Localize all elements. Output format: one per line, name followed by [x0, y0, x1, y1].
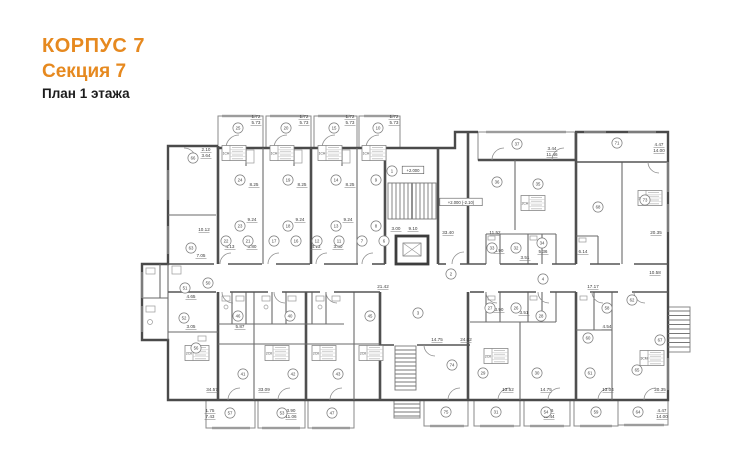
apartment-spec-table: 2СК — [484, 349, 508, 364]
svg-text:68: 68 — [596, 205, 601, 210]
svg-text:5.73: 5.73 — [252, 120, 261, 125]
svg-text:8.25: 8.25 — [298, 182, 307, 187]
svg-text:4.47: 4.47 — [658, 408, 667, 413]
dimension-label: 11.06 — [285, 414, 297, 420]
room-number-circle: 36 — [492, 177, 502, 187]
svg-text:6.14: 6.14 — [579, 249, 588, 254]
svg-text:34.57: 34.57 — [206, 387, 218, 392]
dimension-label: 11.46 — [546, 152, 558, 158]
dimension-label: 14.75 — [431, 337, 443, 343]
svg-text:3.64: 3.64 — [202, 153, 211, 158]
dimension-label: 24.02 — [460, 337, 472, 343]
svg-text:3.51: 3.51 — [520, 310, 529, 315]
svg-text:+2.000: +2.000 — [407, 168, 421, 173]
svg-text:56: 56 — [194, 346, 199, 351]
room-number-circle: 58 — [602, 303, 612, 313]
room-number-circle: 46 — [233, 311, 243, 321]
svg-text:4.47: 4.47 — [655, 142, 664, 147]
svg-text:64: 64 — [636, 410, 641, 415]
svg-text:25: 25 — [236, 126, 241, 131]
room-number-circle: 29 — [478, 368, 488, 378]
svg-text:46: 46 — [236, 314, 241, 319]
svg-text:5.73: 5.73 — [300, 120, 309, 125]
room-number-circle: 12 — [312, 236, 322, 246]
apartment-spec-table: 2СК — [312, 346, 336, 361]
room-number-circle: 8 — [371, 221, 381, 231]
dimension-label: 6.14 — [578, 249, 589, 255]
svg-text:11.52: 11.52 — [489, 230, 501, 235]
svg-text:9.10: 9.10 — [409, 226, 418, 231]
svg-text:73: 73 — [643, 198, 648, 203]
svg-text:2.10: 2.10 — [202, 147, 211, 152]
svg-text:11.06: 11.06 — [285, 414, 297, 419]
dimension-label: 9.24 — [343, 217, 354, 223]
svg-text:1.72: 1.72 — [300, 114, 309, 119]
staircase — [388, 183, 690, 416]
room-number-circle: 17 — [269, 236, 279, 246]
svg-text:11: 11 — [337, 239, 342, 244]
svg-text:17: 17 — [272, 239, 277, 244]
room-number-circle: 67 — [655, 335, 665, 345]
dimension-label: 5.36 — [538, 249, 549, 255]
dimension-label: 34.57 — [206, 387, 218, 393]
floor-plan-page: КОРПУС 7 Секция 7 План 1 этажа — [0, 0, 740, 472]
room-number-circle: 15 — [329, 123, 339, 133]
room-number-circle: 10 — [373, 123, 383, 133]
svg-text:20.35: 20.35 — [650, 230, 662, 235]
svg-text:4.65: 4.65 — [187, 294, 196, 299]
svg-text:1СН: 1СН — [271, 152, 278, 156]
room-number-circle: 18 — [283, 221, 293, 231]
svg-text:24: 24 — [238, 178, 243, 183]
svg-text:11.46: 11.46 — [546, 152, 558, 157]
room-number-circle: 57 — [225, 408, 235, 418]
svg-text:26: 26 — [514, 306, 519, 311]
dimension-label: 1.72 — [251, 114, 262, 120]
dimension-label: 33.09 — [258, 387, 270, 393]
svg-text:5.73: 5.73 — [346, 120, 355, 125]
apartment-spec-table: 1СН — [270, 146, 294, 161]
room-number-circle: 66 — [188, 153, 198, 163]
svg-text:14: 14 — [334, 178, 339, 183]
room-number-circle: 60 — [583, 333, 593, 343]
svg-text:1.75: 1.75 — [206, 408, 215, 413]
svg-text:45: 45 — [368, 314, 373, 319]
apartment-spec-table: 2СК — [359, 346, 383, 361]
room-number-circle: 68 — [593, 202, 603, 212]
svg-text:10: 10 — [376, 126, 381, 131]
svg-text:13: 13 — [334, 224, 339, 229]
svg-text:74: 74 — [450, 363, 455, 368]
room-number-circle: 25 — [233, 123, 243, 133]
svg-text:8.25: 8.25 — [346, 182, 355, 187]
dimension-label: 17.17 — [587, 284, 599, 290]
svg-text:67: 67 — [658, 338, 663, 343]
svg-text:3.00: 3.00 — [392, 226, 401, 231]
dimension-label: 1.75 — [205, 408, 216, 414]
svg-text:24.02: 24.02 — [460, 337, 472, 342]
room-number-circle: 16 — [291, 236, 301, 246]
svg-text:43: 43 — [336, 372, 341, 377]
apartment-spec-table: 1СН — [362, 146, 386, 161]
svg-text:57: 57 — [228, 411, 233, 416]
level-markers: +2.000+2.000 (-2.10) — [402, 166, 482, 206]
room-number-circle: 52 — [179, 313, 189, 323]
svg-text:23: 23 — [238, 224, 243, 229]
room-number-circle: 42 — [288, 369, 298, 379]
room-number-circle: 41 — [238, 369, 248, 379]
svg-text:32: 32 — [514, 246, 519, 251]
room-number-circle: 62 — [627, 295, 637, 305]
svg-text:1.72: 1.72 — [390, 114, 399, 119]
svg-text:37: 37 — [515, 142, 520, 147]
svg-text:12: 12 — [315, 239, 320, 244]
dimension-label: 14.00 — [656, 414, 668, 420]
svg-text:20.35: 20.35 — [654, 387, 666, 392]
dimension-label: 1.72 — [345, 114, 356, 120]
svg-text:4.54: 4.54 — [603, 324, 612, 329]
dimension-label: 3.64 — [201, 153, 212, 159]
room-number-circle: 26 — [511, 303, 521, 313]
dimension-label: 13.04 — [602, 387, 614, 393]
svg-text:19: 19 — [286, 178, 291, 183]
dimension-label: 5.73 — [389, 120, 400, 126]
room-number-circle: 22 — [221, 236, 231, 246]
svg-text:1СН: 1СН — [319, 152, 326, 156]
svg-text:18: 18 — [286, 224, 291, 229]
room-number-circle: 1 — [387, 166, 397, 176]
dimension-label: 2.10 — [201, 147, 212, 153]
room-number-circle: 51 — [180, 283, 190, 293]
dimension-label: 3.44 — [547, 146, 558, 152]
svg-text:30: 30 — [535, 371, 540, 376]
svg-text:28: 28 — [539, 314, 544, 319]
room-number-circle: 35 — [533, 179, 543, 189]
svg-text:61: 61 — [588, 371, 593, 376]
room-number-circle: 27 — [485, 303, 495, 313]
svg-text:7.43: 7.43 — [206, 414, 215, 419]
room-number-circle: 40 — [285, 311, 295, 321]
room-number-circle: 7 — [357, 236, 367, 246]
svg-text:3.51: 3.51 — [521, 255, 530, 260]
room-number-circle: 6 — [379, 236, 389, 246]
svg-text:3СМ: 3СМ — [640, 357, 647, 361]
svg-text:1.72: 1.72 — [252, 114, 261, 119]
svg-text:+2.000 (-2.10): +2.000 (-2.10) — [448, 200, 475, 205]
dimension-label: 5.73 — [251, 120, 262, 126]
apartment-spec-table: 1СН — [222, 146, 246, 161]
dimension-label: 3.05 — [186, 324, 197, 330]
dimension-label: 8.25 — [345, 182, 356, 188]
room-number-circle: 63 — [186, 243, 196, 253]
svg-text:14.75: 14.75 — [540, 387, 552, 392]
dimension-label: 8.25 — [297, 182, 308, 188]
svg-text:14.75: 14.75 — [431, 337, 443, 342]
svg-text:71: 71 — [615, 141, 620, 146]
svg-text:20: 20 — [284, 126, 289, 131]
apartment-spec-table: 3СМ — [640, 351, 664, 366]
svg-text:10.12: 10.12 — [198, 227, 210, 232]
svg-text:27: 27 — [488, 306, 493, 311]
level-marker: +2.000 (-2.10) — [440, 198, 482, 206]
room-number-circle: 64 — [633, 407, 643, 417]
room-number-circle: 30 — [532, 368, 542, 378]
svg-text:5.87: 5.87 — [236, 324, 245, 329]
room-number-circle: 54 — [541, 407, 551, 417]
dimension-labels: 1.725.731.725.731.725.731.725.732.103.64… — [186, 114, 669, 420]
dimension-label: 13.52 — [502, 387, 514, 393]
apartment-spec-table: 1СН — [318, 146, 342, 161]
dimension-label: 9.24 — [247, 217, 258, 223]
dimension-label: 14.75 — [540, 387, 552, 393]
room-number-circle: 14 — [331, 175, 341, 185]
svg-text:47: 47 — [330, 411, 335, 416]
apartment-spec-table: 2СН — [521, 196, 545, 211]
room-number-circle: 59 — [591, 407, 601, 417]
door-arcs — [184, 135, 659, 400]
svg-text:63: 63 — [189, 246, 194, 251]
room-number-circle: 73 — [640, 195, 650, 205]
room-number-circle: 45 — [365, 311, 375, 321]
room-number-circle: 50 — [203, 278, 213, 288]
svg-text:10.58: 10.58 — [649, 270, 661, 275]
svg-text:29: 29 — [481, 371, 486, 376]
svg-text:33.09: 33.09 — [258, 387, 270, 392]
svg-text:60: 60 — [586, 336, 591, 341]
svg-text:3.90: 3.90 — [287, 408, 296, 413]
dimension-label: 1.72 — [299, 114, 310, 120]
dimension-label: 7.43 — [205, 414, 216, 420]
room-number-circle: 33 — [487, 243, 497, 253]
svg-text:33.40: 33.40 — [442, 230, 454, 235]
dimension-label: 10.12 — [198, 227, 210, 233]
dimension-label: 5.73 — [345, 120, 356, 126]
svg-text:42: 42 — [291, 372, 296, 377]
svg-text:62: 62 — [630, 298, 635, 303]
floorplan-drawing: 1СН1СН1СН1СН2СН3СМ2СК2СК2СК2СК2СК3СМ +2.… — [0, 0, 740, 472]
svg-text:33: 33 — [490, 246, 495, 251]
svg-text:2СК: 2СК — [360, 352, 366, 356]
room-number-circle: 65 — [632, 365, 642, 375]
room-number-circle: 21 — [243, 236, 253, 246]
dimension-label: 3.51 — [520, 255, 531, 261]
dimension-label: 33.40 — [442, 230, 454, 236]
svg-text:65: 65 — [635, 368, 640, 373]
svg-text:14.00: 14.00 — [656, 414, 668, 419]
room-number-circle: 32 — [511, 243, 521, 253]
room-number-circle: 24 — [235, 175, 245, 185]
room-number-circle: 37 — [512, 139, 522, 149]
room-number-circle: 34 — [537, 238, 547, 248]
svg-text:14.00: 14.00 — [653, 148, 665, 153]
svg-text:3.44: 3.44 — [548, 146, 557, 151]
svg-text:5.36: 5.36 — [539, 249, 548, 254]
svg-text:51: 51 — [183, 286, 188, 291]
room-number-circle: 71 — [612, 138, 622, 148]
room-number-circle: 61 — [585, 368, 595, 378]
svg-text:5.73: 5.73 — [390, 120, 399, 125]
svg-text:31: 31 — [494, 410, 499, 415]
room-number-circle: 4 — [538, 274, 548, 284]
apartment-spec-table: 2СК — [265, 346, 289, 361]
interior-walls — [142, 148, 622, 400]
svg-text:66: 66 — [191, 156, 196, 161]
svg-text:1СН: 1СН — [363, 152, 370, 156]
svg-text:22: 22 — [224, 239, 229, 244]
dimension-label: 11.52 — [489, 230, 501, 236]
svg-text:58: 58 — [605, 306, 610, 311]
svg-text:9.24: 9.24 — [296, 217, 305, 222]
svg-text:50: 50 — [206, 281, 211, 286]
svg-text:2СК: 2СК — [485, 355, 491, 359]
room-number-circle: 2 — [446, 269, 456, 279]
room-number-circle: 9 — [371, 175, 381, 185]
svg-text:34: 34 — [540, 241, 545, 246]
dimension-label: 21.42 — [377, 284, 389, 290]
svg-text:7.05: 7.05 — [197, 253, 206, 258]
svg-text:1.72: 1.72 — [346, 114, 355, 119]
svg-text:59: 59 — [594, 410, 599, 415]
svg-text:3.05: 3.05 — [187, 324, 196, 329]
dimension-label: 9.24 — [295, 217, 306, 223]
dimension-label: 5.73 — [299, 120, 310, 126]
svg-text:40: 40 — [288, 314, 293, 319]
elevator-shaft — [396, 236, 428, 264]
dimension-label: 4.65 — [186, 294, 197, 300]
svg-text:8.25: 8.25 — [250, 182, 259, 187]
svg-text:41: 41 — [241, 372, 246, 377]
svg-text:16: 16 — [294, 239, 299, 244]
dimension-label: 20.35 — [650, 230, 662, 236]
svg-text:17.17: 17.17 — [587, 284, 599, 289]
room-number-circle: 53 — [277, 408, 287, 418]
room-number-circle: 43 — [333, 369, 343, 379]
svg-text:13.04: 13.04 — [602, 387, 614, 392]
dimension-label: 1.72 — [389, 114, 400, 120]
svg-text:1СН: 1СН — [223, 152, 230, 156]
room-number-circle: 75 — [441, 407, 451, 417]
dimension-label: 20.35 — [654, 387, 666, 393]
dimension-label: 4.54 — [602, 324, 613, 330]
room-number-circle: 56 — [191, 343, 201, 353]
svg-text:53: 53 — [280, 411, 285, 416]
svg-text:35: 35 — [536, 182, 541, 187]
svg-text:2СК: 2СК — [313, 352, 319, 356]
room-number-circle: 74 — [447, 360, 457, 370]
room-number-circle: 28 — [536, 311, 546, 321]
room-number-circle: 23 — [235, 221, 245, 231]
svg-text:21: 21 — [246, 239, 251, 244]
room-number-circle: 13 — [331, 221, 341, 231]
room-number-circle: 3 — [413, 308, 423, 318]
svg-text:2СК: 2СК — [186, 352, 192, 356]
svg-text:54: 54 — [544, 410, 549, 415]
dimension-label: 8.25 — [249, 182, 260, 188]
svg-text:52: 52 — [182, 316, 187, 321]
svg-text:13.52: 13.52 — [502, 387, 514, 392]
svg-text:21.42: 21.42 — [377, 284, 389, 289]
svg-text:9.24: 9.24 — [344, 217, 353, 222]
room-number-circle: 20 — [281, 123, 291, 133]
dimension-label: 7.05 — [196, 253, 207, 259]
svg-text:75: 75 — [444, 410, 449, 415]
svg-text:9.24: 9.24 — [248, 217, 257, 222]
level-marker: +2.000 — [402, 166, 424, 174]
svg-text:3.90: 3.90 — [495, 307, 504, 312]
dimension-label: 10.58 — [649, 270, 661, 276]
room-number-circle: 47 — [327, 408, 337, 418]
room-number-circle: 31 — [491, 407, 501, 417]
room-number-circle: 11 — [334, 236, 344, 246]
svg-text:2СК: 2СК — [266, 352, 272, 356]
svg-text:36: 36 — [495, 180, 500, 185]
dimension-label: 4.47 — [657, 408, 668, 414]
dimension-label: 14.00 — [653, 148, 665, 154]
dimension-label: 3.00 — [391, 226, 402, 232]
svg-text:2СН: 2СН — [522, 202, 529, 206]
svg-text:15: 15 — [332, 126, 337, 131]
dimension-label: 5.87 — [235, 324, 246, 330]
dimension-label: 4.47 — [654, 142, 665, 148]
room-number-circle: 19 — [283, 175, 293, 185]
dimension-label: 9.10 — [408, 226, 419, 232]
